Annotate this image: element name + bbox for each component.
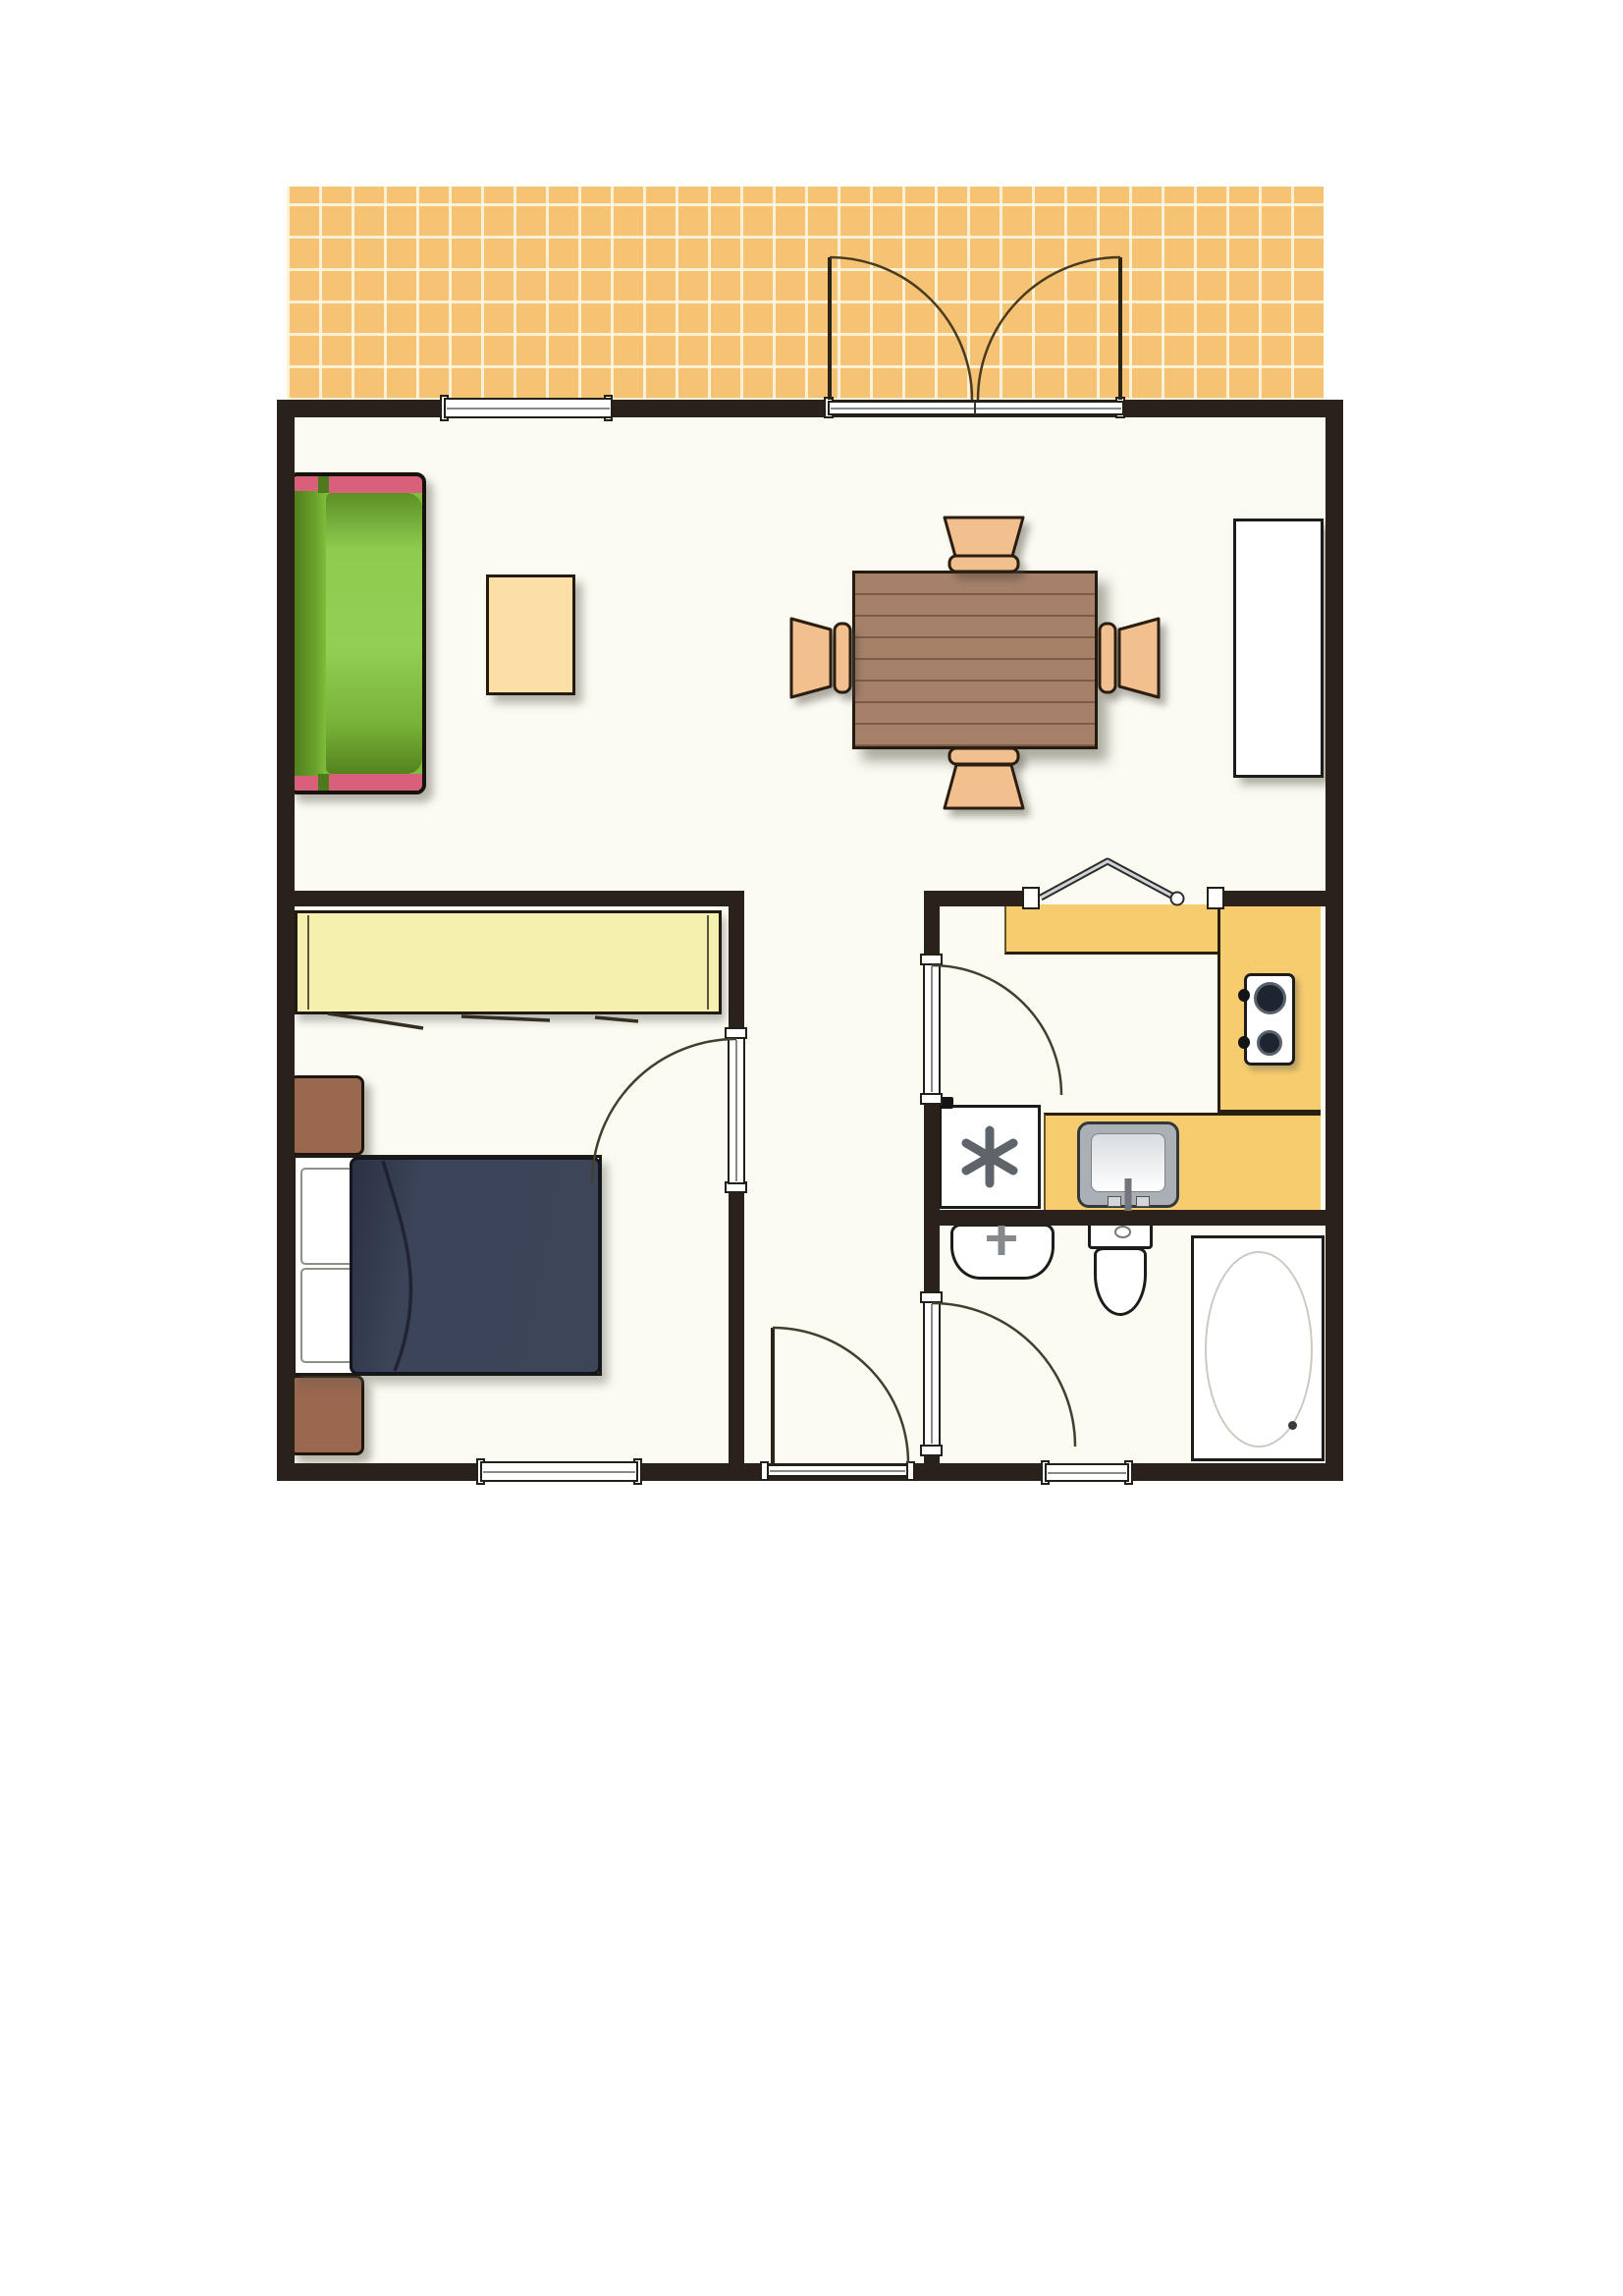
kitchen-counter-top-run [1004,904,1219,955]
kitchen-top-wall-right [1208,891,1343,906]
pass-through-jamb-right [1207,887,1224,909]
bathtub-basin [1205,1251,1313,1448]
outer-wall-left [277,400,295,1481]
bathroom-window [1045,1463,1129,1482]
pass-through-jamb-left [1022,887,1040,909]
bedroom-door-leaf [728,1037,745,1184]
nightstand-upper [289,1075,364,1156]
french-door-center-post [974,402,976,414]
living-room-window [444,398,613,418]
burner-small [1257,1030,1282,1056]
sofa-armrest-bottom [292,774,422,791]
bathroom-door-leaf [923,1301,941,1447]
washbasin [950,1224,1055,1280]
bedroom-window [480,1461,638,1482]
burner-large [1254,982,1286,1014]
sofa-backrest [292,491,326,776]
floor-plan-page [0,0,1623,2296]
kitchen-sink-basin [1091,1133,1165,1192]
terrace-tiled-area [287,187,1324,401]
sofa-seat [326,493,422,774]
kitchen-sink [1077,1121,1179,1208]
bathtub-drain [1288,1421,1297,1430]
bathroom-top-wall [924,1210,1343,1226]
outer-wall-right [1325,400,1343,1481]
bedroom-top-wall [295,891,744,906]
cooktop-knob-top [1238,989,1250,1002]
kitchen-faucet-handle-right [1136,1196,1150,1207]
coffee-table [486,574,575,695]
cooktop-knob-bottom [1238,1036,1250,1049]
sofa [288,472,426,794]
dining-table [852,571,1098,749]
wardrobe-side-panel-right [707,915,709,1010]
outer-wall-top [277,400,1343,417]
toilet-flush-button [1114,1226,1131,1238]
kitchen-door-leaf [923,963,941,1095]
nightstand-lower [289,1375,364,1455]
bathtub [1191,1235,1325,1461]
kitchen-top-wall-left [924,891,1038,906]
sofa-cushion-gap-top [318,476,329,493]
sideboard [1233,519,1324,778]
entrance-door-threshold [767,1464,908,1477]
sofa-cushion-gap-bottom [318,774,329,791]
wardrobe [295,910,722,1014]
wardrobe-side-panel-left [307,915,309,1010]
washing-machine [939,1105,1041,1209]
terrace-french-door-threshold [828,401,1124,415]
duvet [350,1157,601,1375]
kitchen-faucet-handle-left [1108,1196,1121,1207]
